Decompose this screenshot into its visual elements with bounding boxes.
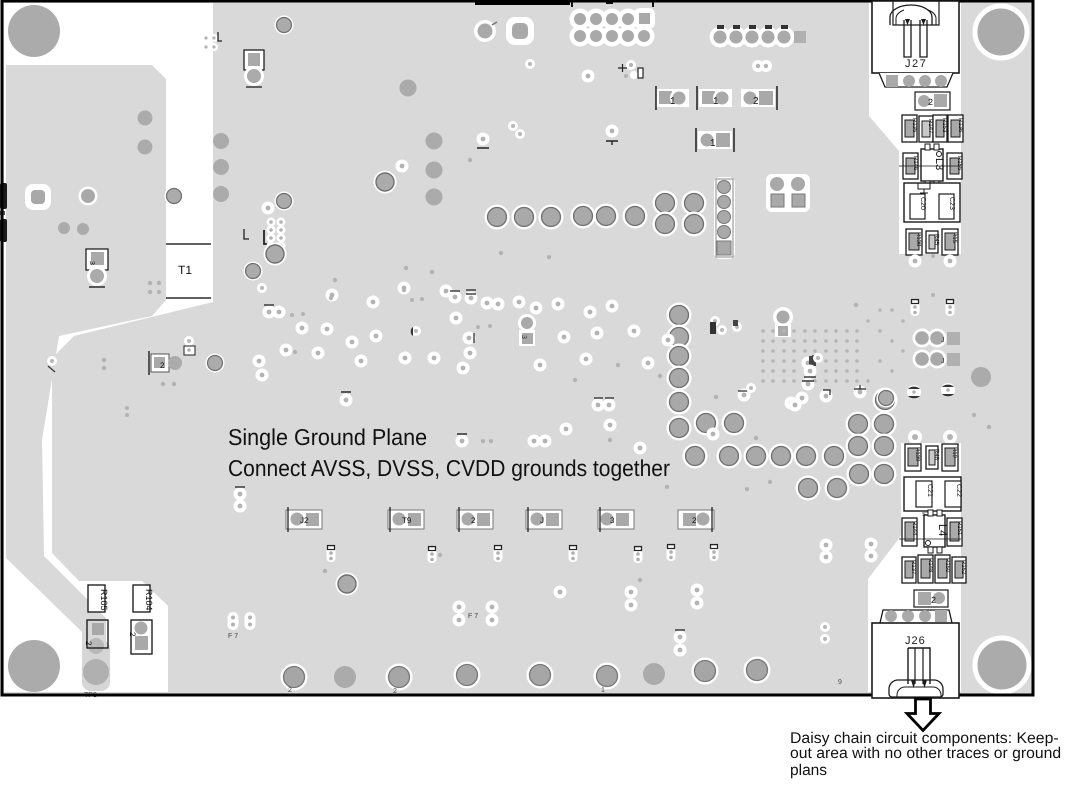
svg-text:J27: J27 <box>905 58 927 70</box>
svg-text:L4: L4 <box>936 524 948 536</box>
svg-text:R152: R152 <box>960 560 967 575</box>
svg-text:2: 2 <box>128 632 137 637</box>
svg-text:2: 2 <box>84 641 93 646</box>
svg-text:2: 2 <box>471 516 476 525</box>
svg-text:L3: L3 <box>933 158 945 170</box>
svg-text:2: 2 <box>692 516 697 525</box>
svg-text:T1: T1 <box>178 263 192 277</box>
svg-text:R138: R138 <box>915 232 922 247</box>
svg-text:R155: R155 <box>956 156 963 171</box>
svg-text:1: 1 <box>601 687 605 694</box>
svg-text:F 7: F 7 <box>228 633 238 640</box>
svg-text:R146: R146 <box>912 156 919 171</box>
svg-text:plans: plans <box>790 762 827 779</box>
svg-text:R136: R136 <box>957 118 964 133</box>
svg-text:3: 3 <box>520 335 527 339</box>
svg-text:Connect AVSS, DVSS, CVDD groun: Connect AVSS, DVSS, CVDD grounds togethe… <box>228 455 670 481</box>
svg-text:F 7: F 7 <box>468 613 478 620</box>
svg-text:1: 1 <box>710 138 716 149</box>
svg-text:R151: R151 <box>956 521 963 536</box>
svg-text:R15: R15 <box>951 232 958 244</box>
svg-text:J26: J26 <box>905 635 926 647</box>
svg-text:R19: R19 <box>951 447 958 459</box>
svg-text:R135: R135 <box>911 118 918 133</box>
svg-text:1: 1 <box>670 96 676 107</box>
svg-text:2: 2 <box>160 361 165 370</box>
svg-text:R139: R139 <box>914 447 921 462</box>
svg-text:C22: C22 <box>955 484 962 497</box>
svg-text:R144: R144 <box>911 521 918 536</box>
svg-text:9: 9 <box>838 679 842 686</box>
svg-text:out area with no other traces: out area with no other traces or ground <box>790 745 1061 762</box>
svg-text:2: 2 <box>288 687 292 694</box>
svg-text:2: 2 <box>928 97 933 107</box>
svg-text:R137: R137 <box>910 560 917 575</box>
svg-text:2: 2 <box>753 96 759 107</box>
svg-text:R105: R105 <box>99 589 109 611</box>
svg-text:C20: C20 <box>919 197 926 210</box>
svg-text:3: 3 <box>88 261 95 265</box>
svg-text:R104: R104 <box>144 589 154 611</box>
svg-text:R48: R48 <box>933 449 940 461</box>
svg-text:R150: R150 <box>944 558 951 573</box>
svg-text:J2: J2 <box>300 516 309 525</box>
svg-text:R148: R148 <box>927 558 934 573</box>
svg-text:Single Ground Plane: Single Ground Plane <box>228 424 427 450</box>
svg-text:C23: C23 <box>948 197 955 210</box>
svg-text:1: 1 <box>713 96 719 107</box>
svg-text:C21: C21 <box>926 484 933 497</box>
svg-text:J: J <box>540 516 544 525</box>
svg-text:T9: T9 <box>402 516 412 525</box>
svg-text:R153: R153 <box>941 118 948 133</box>
svg-text:3: 3 <box>610 516 615 525</box>
svg-text:R45: R45 <box>933 234 940 246</box>
svg-text:J: J <box>941 337 945 344</box>
svg-text:J: J <box>941 358 945 365</box>
svg-text:2: 2 <box>931 595 936 605</box>
